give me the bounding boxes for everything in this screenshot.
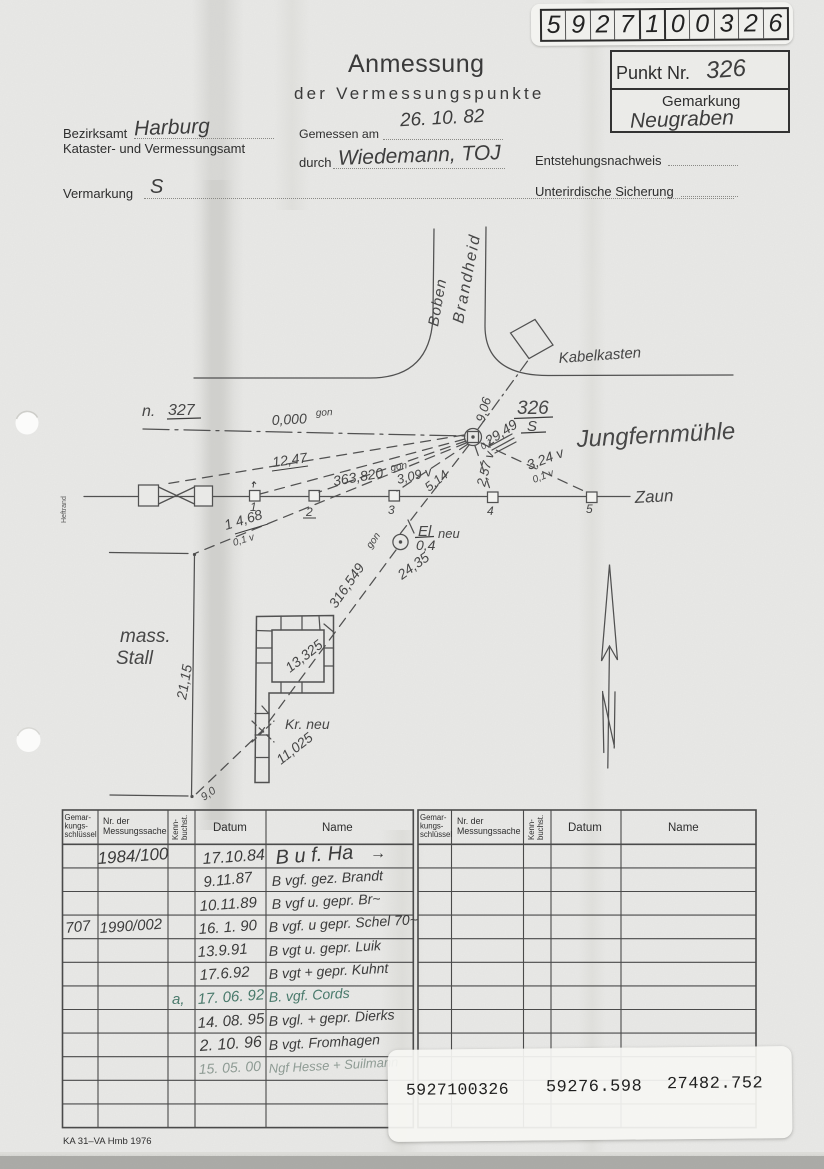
svg-text:17.10.84: 17.10.84 xyxy=(202,847,265,868)
svg-text:707: 707 xyxy=(65,917,92,937)
svg-text:17.6.92: 17.6.92 xyxy=(199,963,251,983)
svg-text:Messungssache: Messungssache xyxy=(103,826,167,836)
svg-text:buchst.: buchst. xyxy=(536,815,545,840)
svg-text:B vgf. gez. Brandt: B vgf. gez. Brandt xyxy=(271,867,384,889)
svg-text:→: → xyxy=(370,845,386,862)
svg-text:buchst.: buchst. xyxy=(180,815,189,840)
svg-text:B vgt. Fromhagen: B vgt. Fromhagen xyxy=(268,1031,380,1053)
svg-text:14. 08. 95: 14. 08. 95 xyxy=(197,1010,265,1032)
svg-text:9.11.87: 9.11.87 xyxy=(203,869,254,891)
svg-text:Name: Name xyxy=(322,822,353,834)
svg-text:B vgt + gepr. Kuhnt: B vgt + gepr. Kuhnt xyxy=(268,960,390,982)
svg-text:Datum: Datum xyxy=(213,822,247,834)
svg-text:Nr. der: Nr. der xyxy=(457,816,483,826)
svg-text:13.9.91: 13.9.91 xyxy=(197,941,248,961)
svg-text:1990/002: 1990/002 xyxy=(99,916,163,937)
svg-text:schlüssel: schlüssel xyxy=(65,830,97,839)
svg-text:a,: a, xyxy=(172,991,185,1008)
svg-text:Kenn-: Kenn- xyxy=(527,819,536,840)
svg-text:B. vgf. Cords: B. vgf. Cords xyxy=(268,985,350,1005)
svg-text:Nr. der: Nr. der xyxy=(103,816,129,826)
svg-text:Name: Name xyxy=(668,822,699,834)
svg-text:Messungssache: Messungssache xyxy=(457,826,521,836)
svg-text:Kenn-: Kenn- xyxy=(171,819,180,840)
svg-text:B vgf u. gepr. Br~: B vgf u. gepr. Br~ xyxy=(271,890,381,912)
svg-text:2. 10. 96: 2. 10. 96 xyxy=(198,1034,262,1055)
svg-text:1984/100: 1984/100 xyxy=(97,844,170,868)
svg-text:Datum: Datum xyxy=(568,822,602,834)
svg-text:17. 06. 92: 17. 06. 92 xyxy=(197,986,265,1008)
svg-text:16. 1. 90: 16. 1. 90 xyxy=(198,917,258,938)
svg-text:B vgt u. gepr. Luik: B vgt u. gepr. Luik xyxy=(268,937,382,959)
svg-text:15. 05. 00: 15. 05. 00 xyxy=(198,1058,261,1077)
svg-text:schlüssel: schlüssel xyxy=(420,830,452,839)
svg-text:Ngf Hesse + Suilmann: Ngf Hesse + Suilmann xyxy=(268,1054,398,1076)
svg-text:B u f. Ha: B u f. Ha xyxy=(275,842,354,869)
svg-text:10.11.89: 10.11.89 xyxy=(199,894,258,915)
